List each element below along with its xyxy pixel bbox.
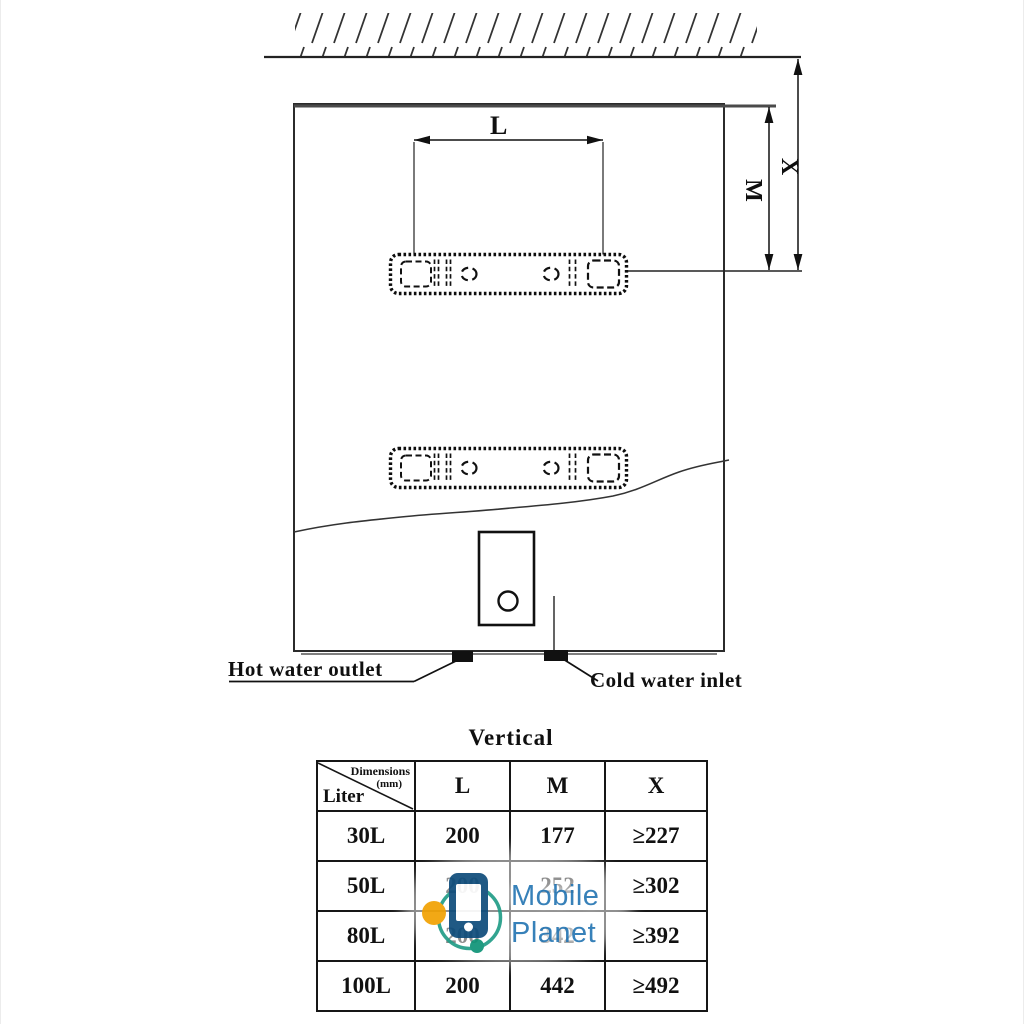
l-value-cell: 200 bbox=[415, 961, 510, 1011]
cold-water-inlet-label: Cold water inlet bbox=[590, 668, 742, 693]
corner-liter-label: Liter bbox=[323, 786, 364, 808]
dim-label-l: L bbox=[490, 111, 507, 141]
dim-label-m: M bbox=[739, 179, 766, 202]
arrow-icon bbox=[765, 107, 774, 123]
table-row: 100L 200 442 ≥492 bbox=[317, 961, 707, 1011]
m-value-cell: 442 bbox=[510, 961, 605, 1011]
teal-dot-icon bbox=[470, 939, 484, 953]
mounting-bracket-top bbox=[391, 255, 627, 294]
dim-label-x: X bbox=[775, 158, 802, 175]
corner-dimensions-label: Dimensions bbox=[351, 764, 410, 779]
column-header-l: L bbox=[415, 761, 510, 811]
watermark-text-line1: Mobile bbox=[511, 880, 599, 913]
hot-water-outlet-label: Hot water outlet bbox=[228, 657, 383, 682]
arrow-icon bbox=[794, 59, 803, 75]
element-cover-screw-icon bbox=[499, 592, 518, 611]
corner-unit-label: (mm) bbox=[376, 778, 402, 790]
x-value-cell: ≥492 bbox=[605, 961, 707, 1011]
arrow-icon bbox=[794, 254, 803, 270]
table-title: Vertical bbox=[316, 725, 706, 751]
liter-cell: 80L bbox=[317, 911, 415, 961]
phone-home-button bbox=[464, 923, 473, 932]
installation-diagram-page: L M X Hot water outlet Cold water inlet … bbox=[0, 0, 1024, 1024]
hot-water-nub bbox=[452, 651, 473, 662]
watermark-text-line2: Planet bbox=[511, 917, 596, 950]
liter-cell: 30L bbox=[317, 811, 415, 861]
orange-dot-icon bbox=[422, 901, 446, 925]
table-corner-cell: Dimensions (mm) Liter bbox=[317, 761, 415, 811]
column-header-x: X bbox=[605, 761, 707, 811]
mounting-bracket-bottom bbox=[391, 449, 627, 488]
hot-leader-line bbox=[414, 661, 456, 682]
ceiling-hatch bbox=[295, 13, 757, 57]
phone-screen bbox=[456, 884, 481, 921]
watermark: Mobile Planet bbox=[414, 856, 624, 966]
x-value-cell: ≥227 bbox=[605, 811, 707, 861]
column-header-m: M bbox=[510, 761, 605, 811]
table-header-row: Dimensions (mm) Liter L M X bbox=[317, 761, 707, 811]
arrow-icon bbox=[765, 254, 774, 270]
liter-cell: 100L bbox=[317, 961, 415, 1011]
liter-cell: 50L bbox=[317, 861, 415, 911]
